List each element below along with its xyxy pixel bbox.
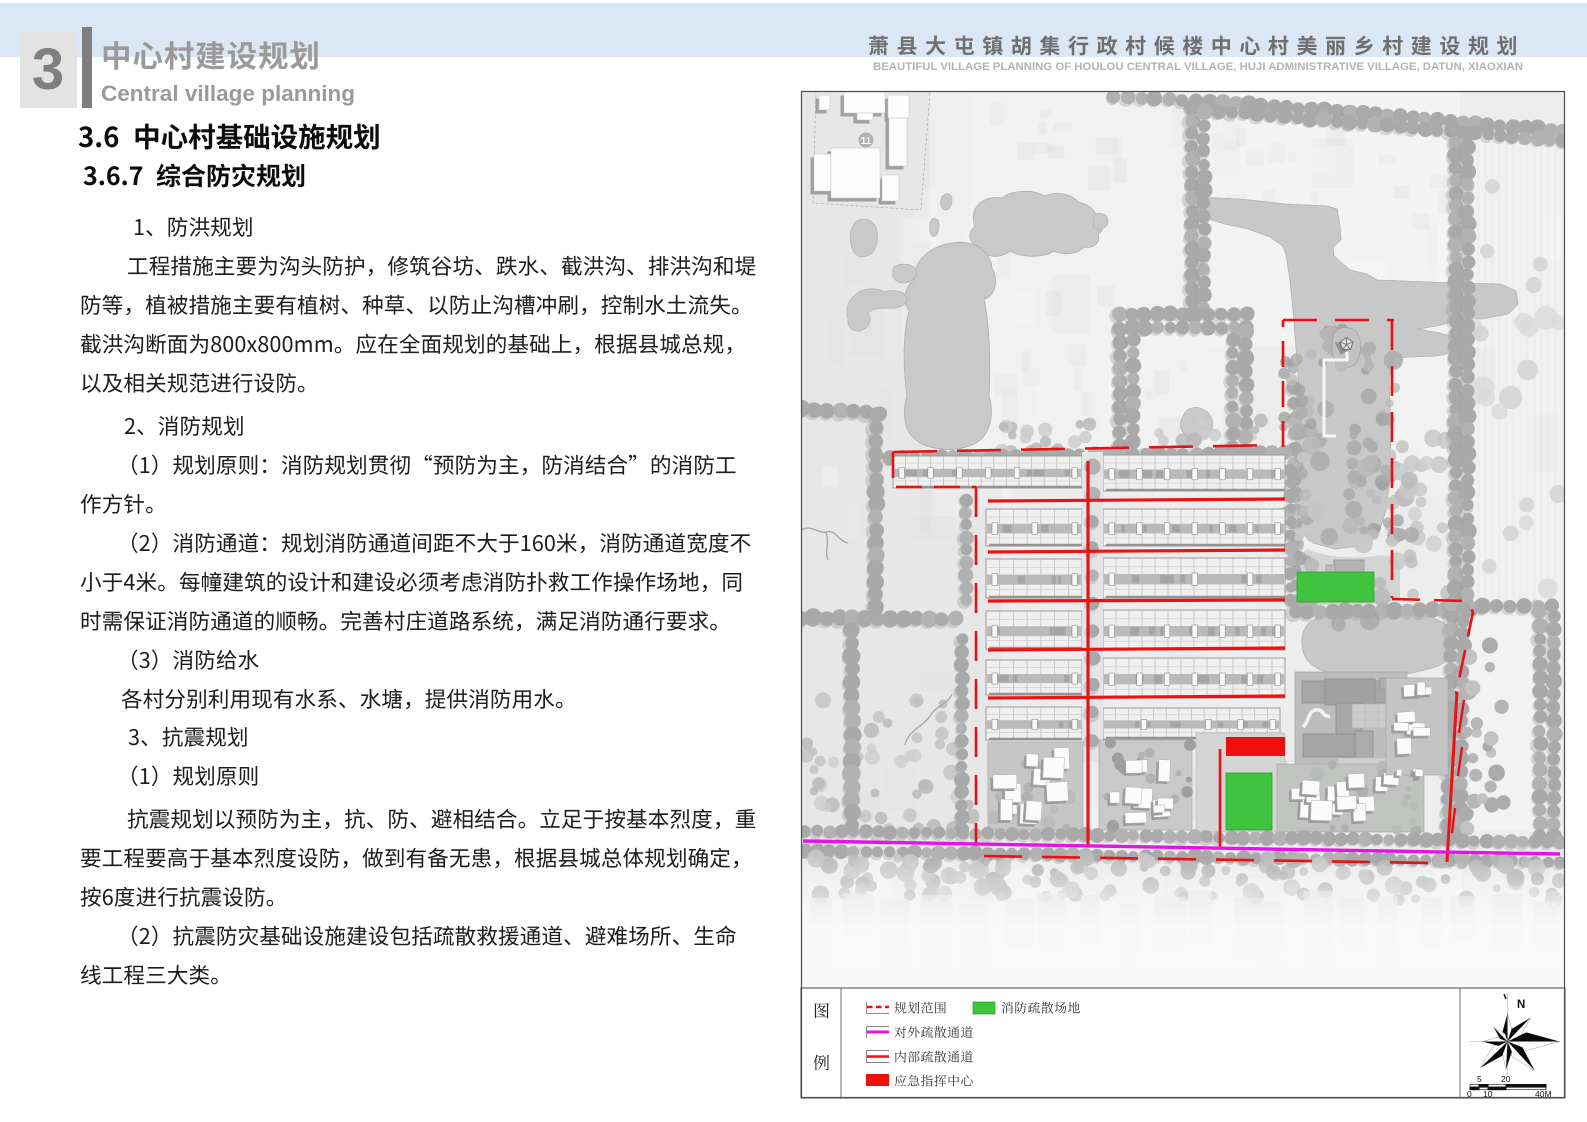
svg-text:BEAUTIFUL VILLAGE PLANNING OF: BEAUTIFUL VILLAGE PLANNING OF HOULOU CEN…	[873, 61, 1523, 73]
svg-text:N: N	[1517, 999, 1525, 1011]
svg-text:5: 5	[1477, 1074, 1482, 1084]
svg-text:3: 3	[32, 37, 64, 102]
svg-text:Central village planning: Central village planning	[101, 81, 355, 106]
svg-text:20: 20	[1501, 1074, 1511, 1084]
svg-text:11: 11	[861, 136, 872, 147]
